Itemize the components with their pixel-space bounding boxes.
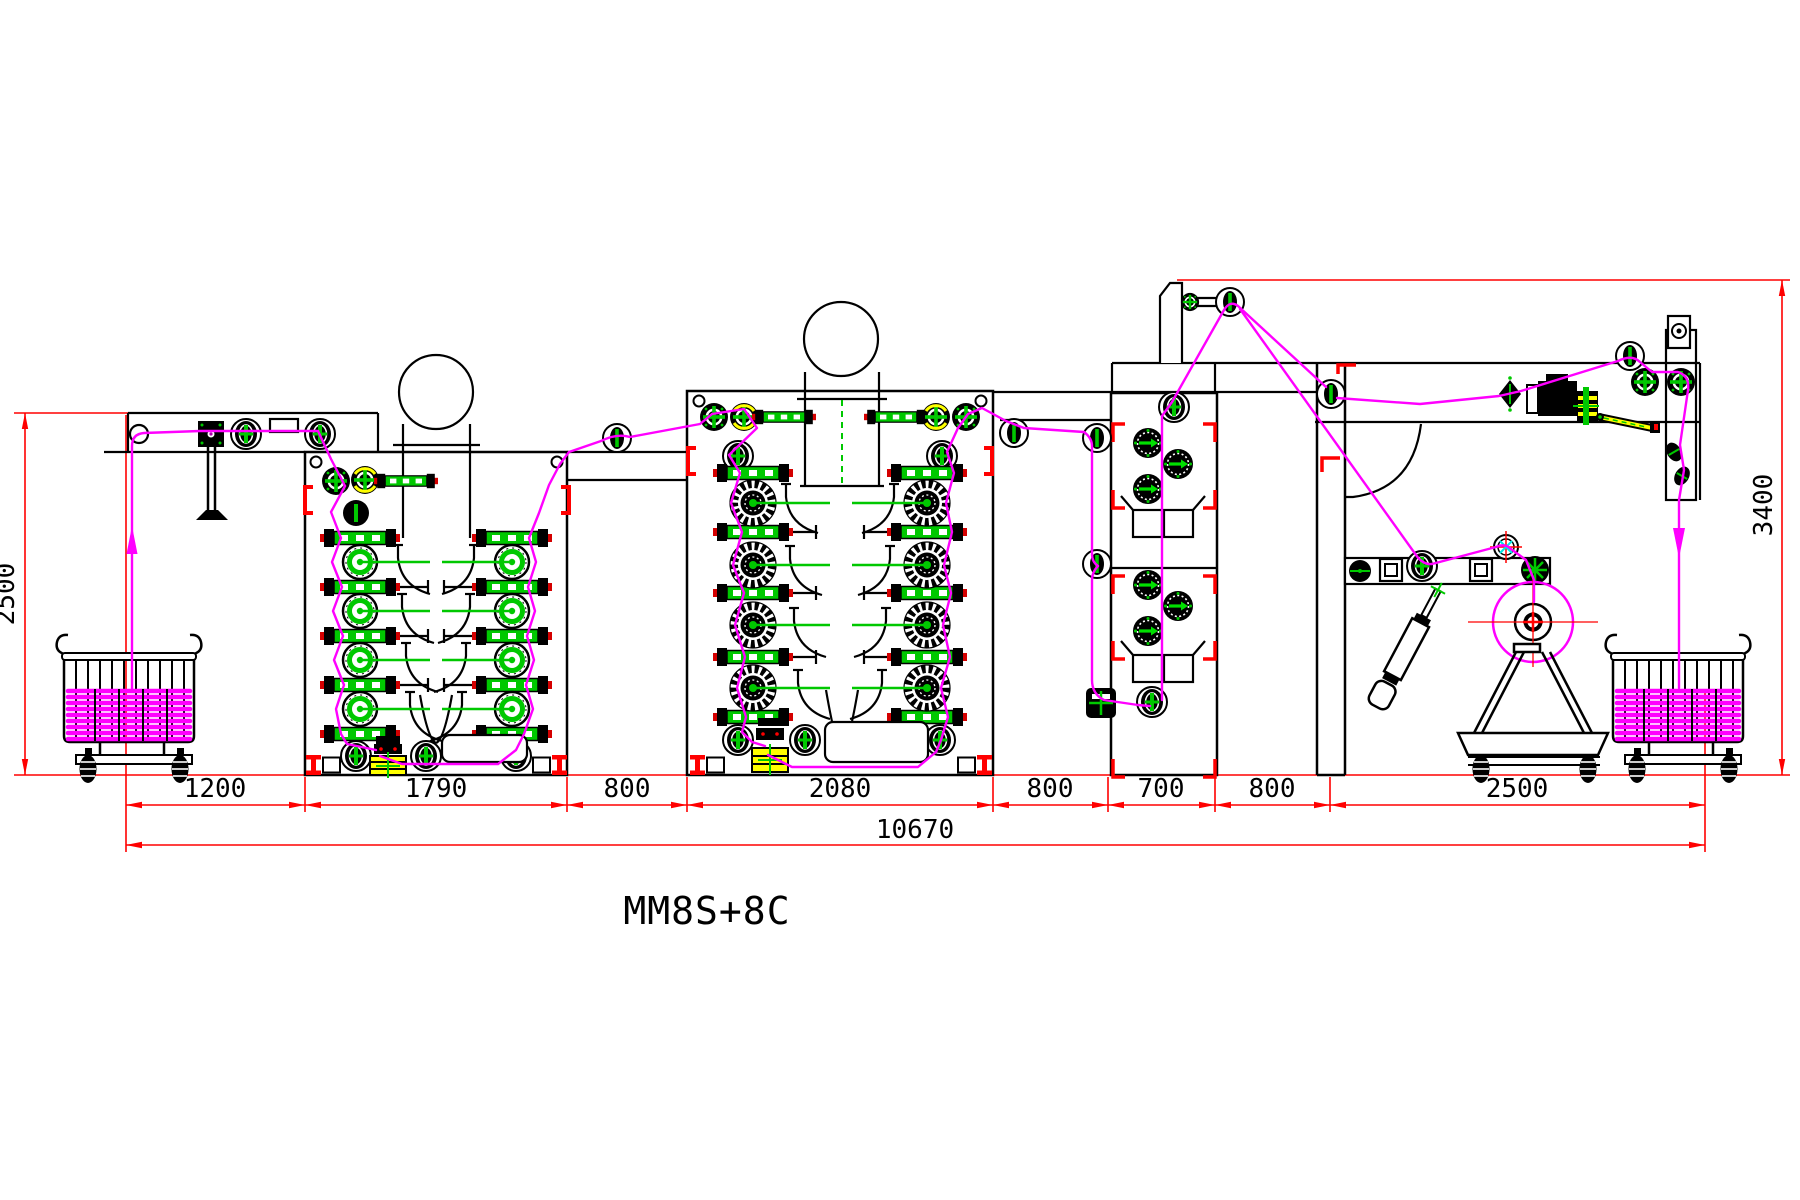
dim-segment-label: 800: [1249, 774, 1296, 804]
dim-total-label: 10670: [876, 815, 954, 845]
machine-2-steamer: [687, 302, 993, 775]
dim-left-height-label: 2500: [0, 563, 21, 626]
outlet-panel: [1663, 316, 1696, 500]
dim-segment-label: 2080: [809, 774, 872, 804]
hydraulic-cylinder: [1366, 578, 1451, 712]
dim-segment-label: 800: [604, 774, 651, 804]
bridge-1: [567, 452, 687, 480]
dim-segment-label: 800: [1027, 774, 1074, 804]
dim-segment-label: 2500: [1486, 774, 1549, 804]
bottom-guide-block: [1086, 688, 1116, 718]
fabric-cart-left: [57, 635, 202, 783]
dim-segment-label: 700: [1138, 774, 1185, 804]
machine-model-label: MM8S+8C: [623, 889, 790, 933]
overhead-pulley: [1216, 288, 1244, 316]
dim-right-height-label: 3400: [1749, 474, 1779, 537]
web-direction-arrow-down: [1673, 528, 1685, 558]
cad-drawing-page: 1200 1790 800 2080 800 700 800 2500 1067…: [0, 0, 1800, 1200]
support-beam: [1345, 531, 1550, 584]
control-cabinet: [1083, 392, 1217, 777]
drive-motor: [1527, 374, 1599, 425]
machine-1-washer: [305, 355, 569, 778]
infeed-roller-1: [231, 419, 261, 449]
machine-line-drawing: 1200 1790 800 2080 800 700 800 2500 1067…: [0, 0, 1800, 1200]
dim-segment-label: 1790: [405, 774, 468, 804]
tension-unit-1: [370, 736, 406, 778]
exhaust-fan-1: [399, 355, 473, 429]
exhaust-fan-2: [804, 302, 878, 376]
dim-segment-label: 1200: [184, 774, 247, 804]
mast-guide-wheel: [1181, 293, 1199, 311]
trolley-wheel-right: [1580, 755, 1597, 783]
web-direction-arrow-up: [127, 526, 138, 554]
thread-guide-stand: [196, 421, 228, 520]
tension-unit-2: [752, 718, 788, 775]
